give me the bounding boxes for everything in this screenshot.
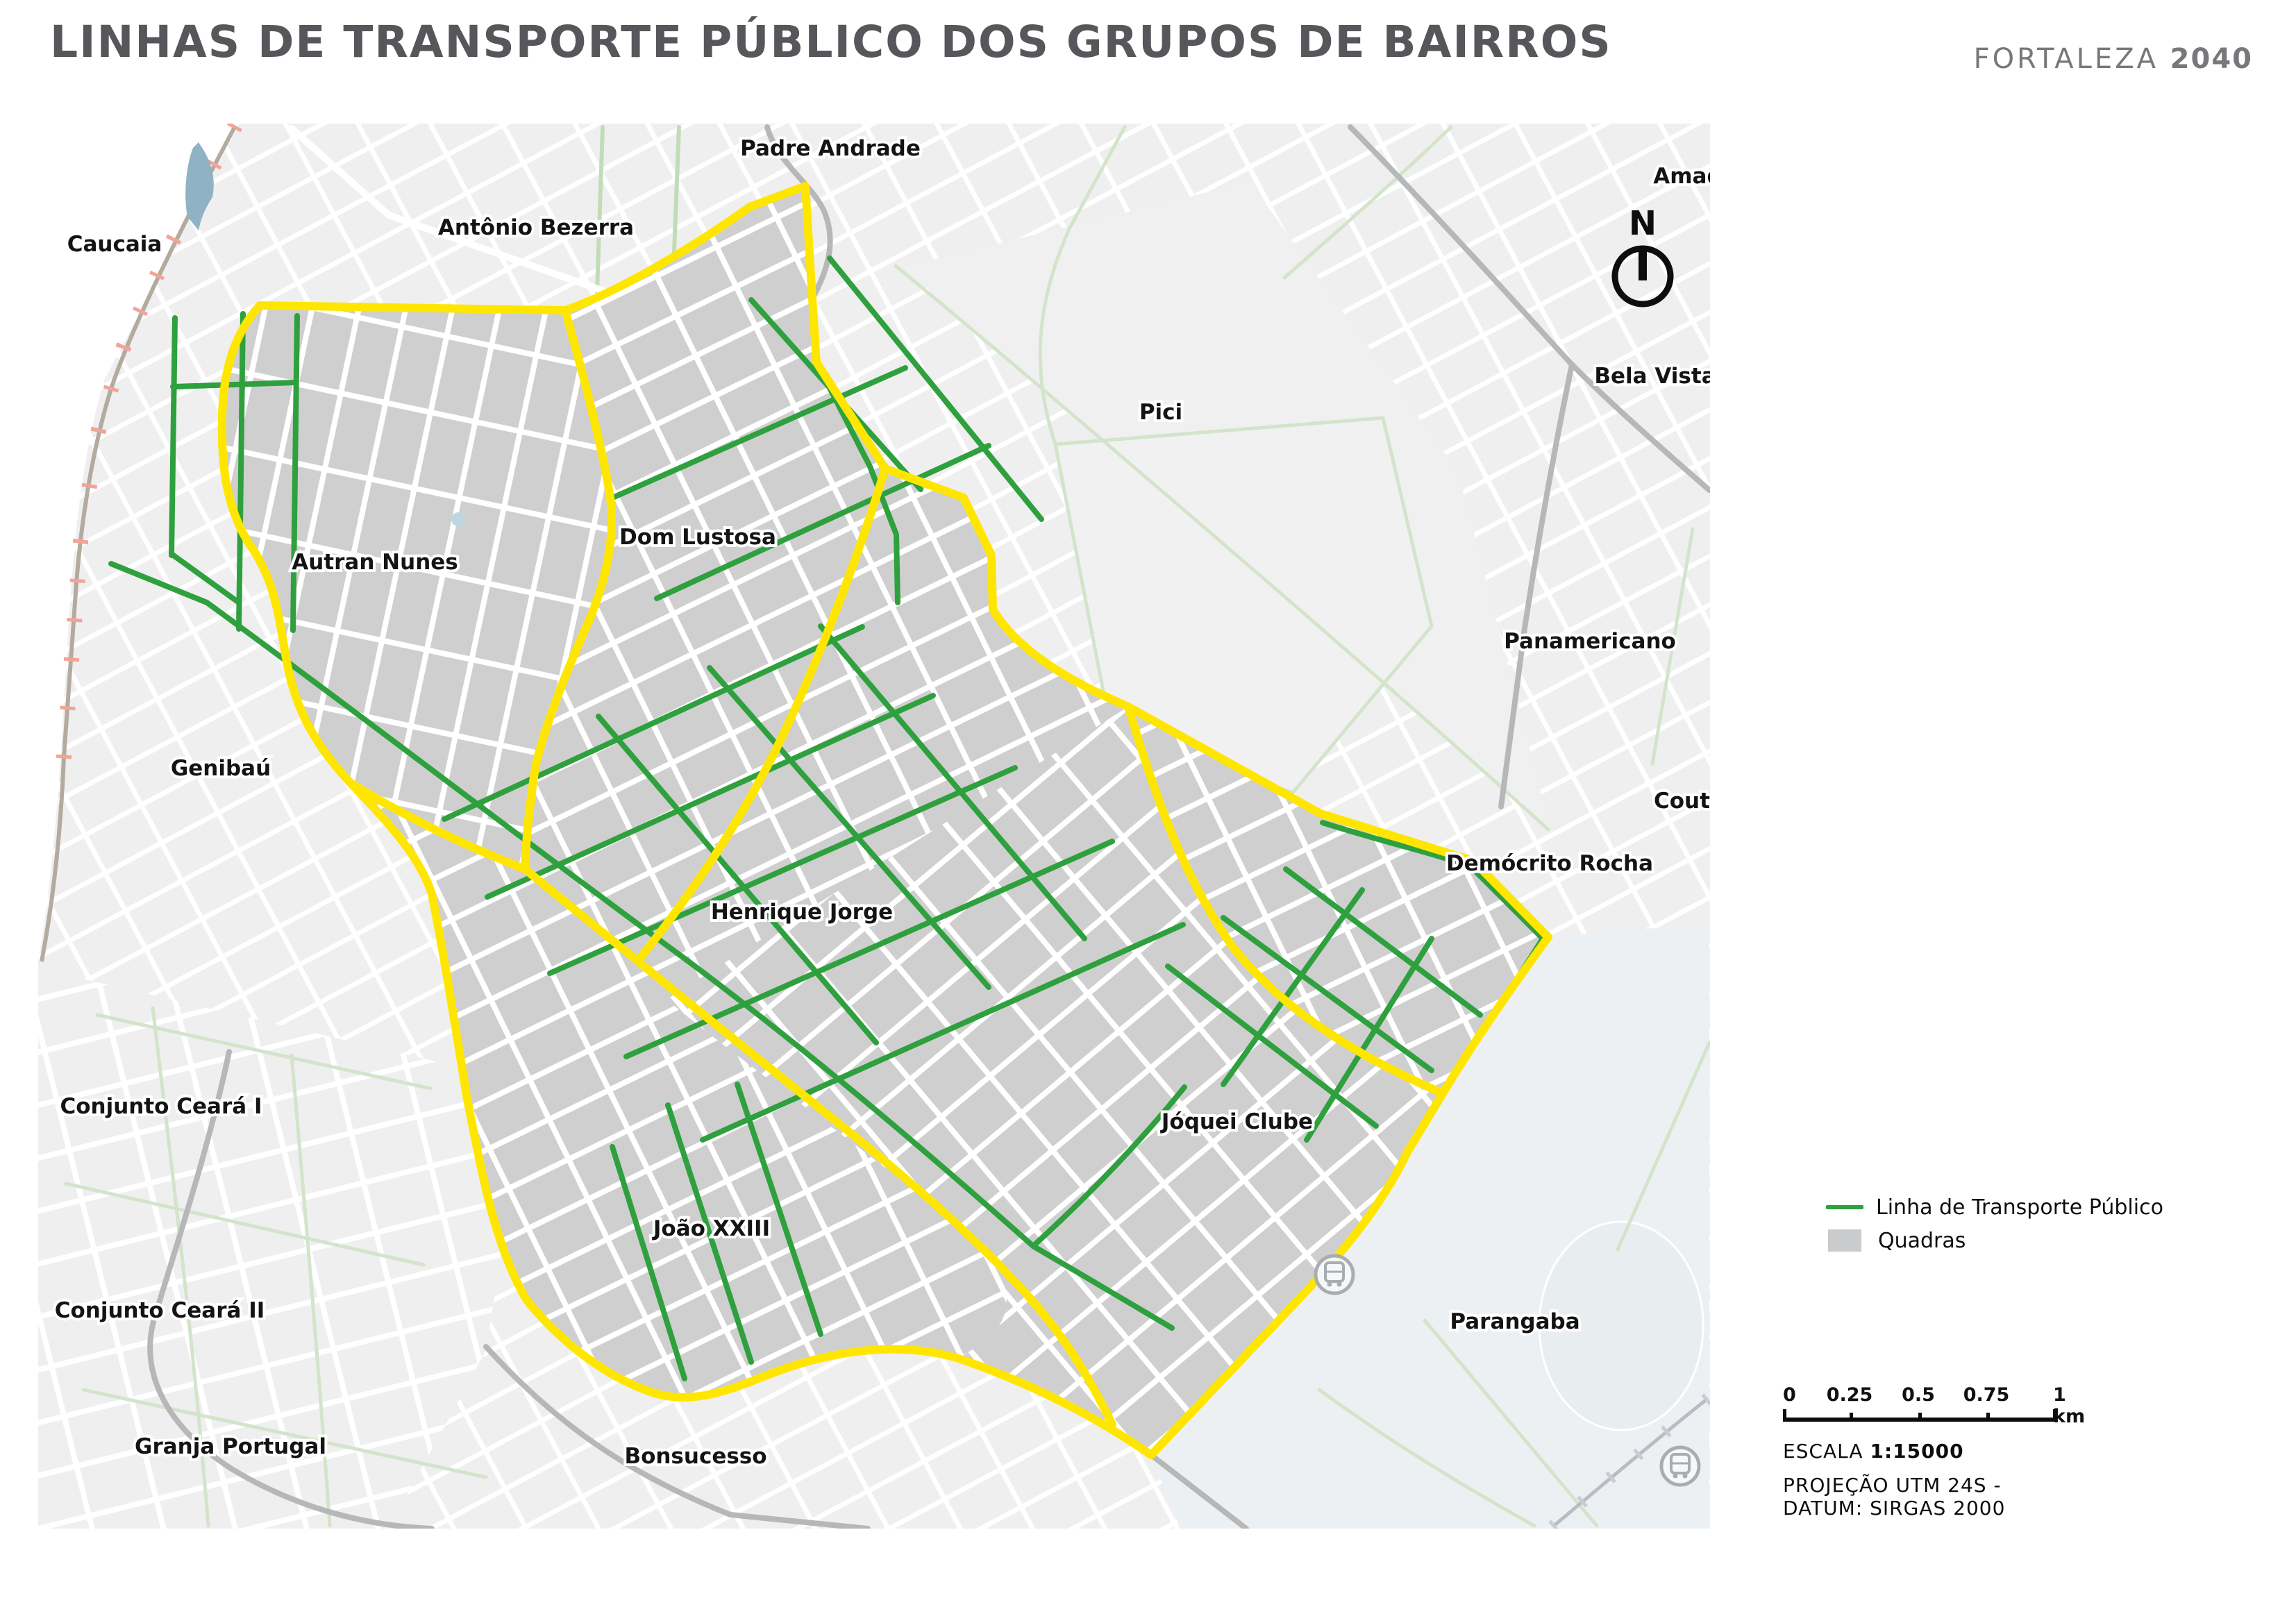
scalebar-bar [1783,1409,2056,1422]
map-label-caucaia: Caucaia [67,232,162,257]
transport-line-swatch [1826,1205,1863,1209]
scalebar-labels: 00.250.50.751 km [1783,1384,2075,1409]
map-label-ant-nio-bezerra: Antônio Bezerra [438,215,634,240]
map-label-couto-fernandes: Couto Fernandes [1654,789,1859,814]
map-label-bonsucesso: Bonsucesso [624,1444,766,1469]
bus-terminal-icon [1316,1256,1353,1293]
scale-value: 1:15000 [1870,1440,1963,1463]
map-label-henrique-jorge: Henrique Jorge [711,900,893,925]
map-label-parangaba: Parangaba [1450,1309,1579,1334]
map-label-granja-portugal: Granja Portugal [135,1434,326,1459]
scalebar-tick-label: 0.25 [1827,1384,1873,1406]
map-label-amadeu-furtado: Amadeu Furtado [1653,164,1854,189]
map-label-jo-o-xxiii: João XXIII [652,1216,770,1241]
legend-transport-label: Linha de Transporte Público [1876,1195,2163,1220]
scalebar-tick-label: 1 km [2053,1384,2085,1427]
bus-terminal-icon [1661,1447,1699,1485]
map-sheet: LINHAS DE TRANSPORTE PÚBLICO DOS GRUPOS … [0,0,2296,1623]
map-label-padre-andrade: Padre Andrade [740,136,921,161]
scalebar-tick-label: 0.75 [1963,1384,2010,1406]
map-label-dom-lustosa: Dom Lustosa [619,525,776,550]
map-label-geniba-: Genibaú [171,756,271,781]
scale-label: ESCALA [1783,1440,1863,1463]
map-label-dem-crito-rocha: Demócrito Rocha [1446,851,1653,876]
map-label-bela-vista: Bela Vista [1594,364,1716,389]
map-canvas[interactable]: N CaucaiaPadre AndradeAntônio BezerraAma… [0,0,2296,1623]
map-label-j-quei-clube: Jóquei Clube [1160,1109,1313,1134]
projection-text: PROJEÇÃO UTM 24S - DATUM: SIRGAS 2000 [1783,1474,2075,1520]
scalebar-tick-label: 0 [1783,1384,1796,1406]
legend-item-blocks: Quadras [1826,1229,2163,1252]
legend-blocks-label: Quadras [1878,1229,1966,1253]
map-label-conjunto-cear-ii: Conjunto Ceará II [55,1298,265,1323]
scalebar-tick-label: 0.5 [1902,1384,1935,1406]
pond [451,512,465,526]
map-label-pici: Pici [1139,400,1182,425]
blocks-swatch [1828,1229,1861,1252]
map-label-conjunto-cear-i: Conjunto Ceará I [60,1094,262,1119]
map-label-panamericano: Panamericano [1504,629,1676,654]
scale-text: ESCALA 1:15000 [1783,1440,2075,1463]
legend-item-transport: Linha de Transporte Público [1826,1195,2163,1219]
map-label-autran-nunes: Autran Nunes [292,550,458,575]
legend: Linha de Transporte Público Quadras [1826,1195,2163,1262]
compass-north-label: N [1629,204,1657,243]
scalebar: 00.250.50.751 km ESCALA 1:15000 PROJEÇÃO… [1783,1384,2075,1520]
